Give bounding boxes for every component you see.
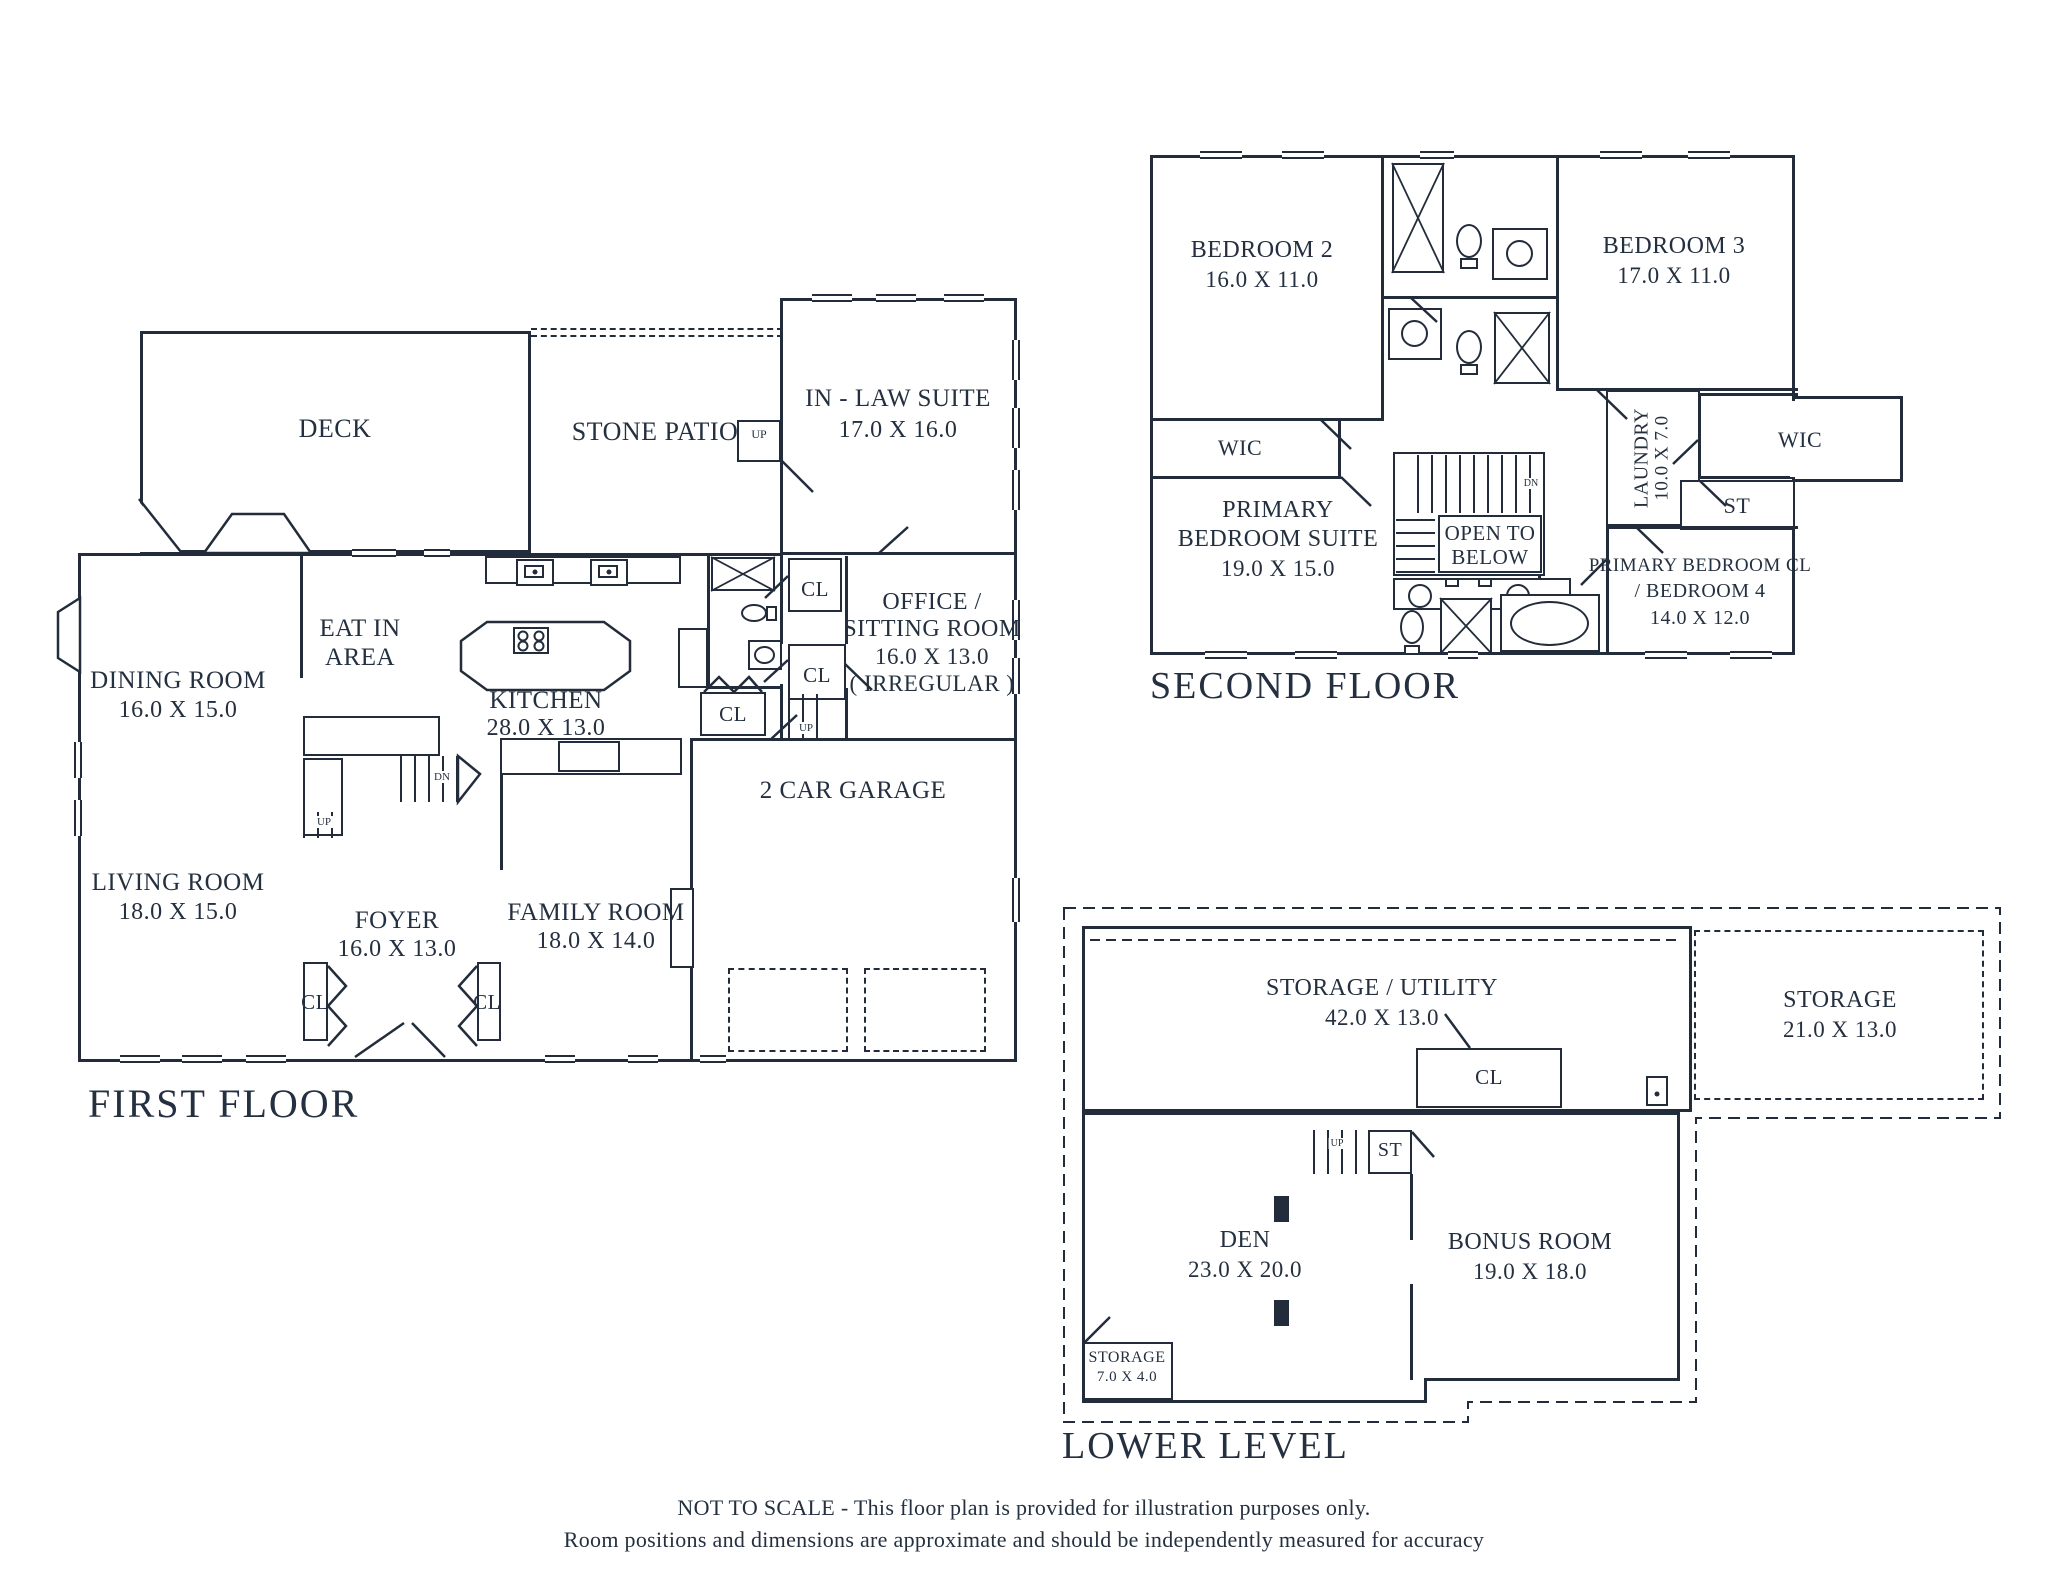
floor-plan-sheet: DN UP UP UP DECK STONE PATIO IN - LAW SU… bbox=[0, 0, 2048, 1583]
plan-linework-overlay bbox=[0, 0, 2048, 1583]
